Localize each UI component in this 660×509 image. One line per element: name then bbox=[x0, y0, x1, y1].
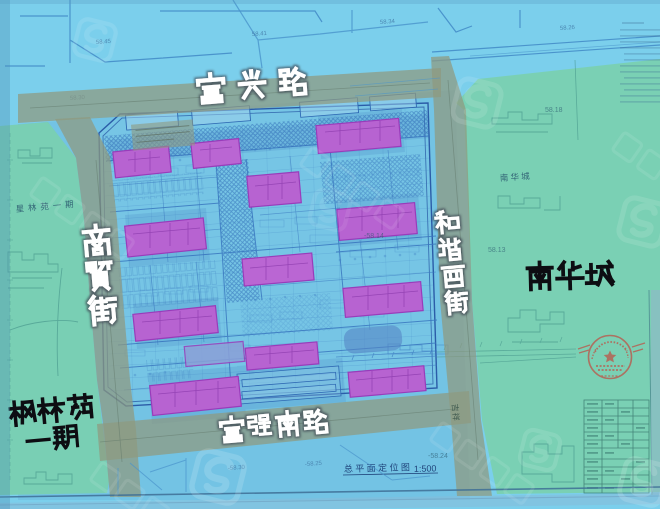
svg-text:1:500: 1:500 bbox=[414, 463, 437, 474]
svg-text:58.18: 58.18 bbox=[545, 107, 563, 114]
svg-text:吉祥: 吉祥 bbox=[450, 403, 461, 421]
svg-text:-58.14: -58.14 bbox=[364, 233, 384, 240]
svg-text:-58.24: -58.24 bbox=[428, 453, 448, 460]
svg-text:58.26: 58.26 bbox=[560, 25, 576, 32]
svg-text:58.13: 58.13 bbox=[488, 247, 506, 254]
svg-text:58.34: 58.34 bbox=[380, 19, 396, 26]
svg-text:南华城: 南华城 bbox=[499, 171, 530, 183]
svg-text:58.41: 58.41 bbox=[252, 31, 268, 38]
svg-text:-58.25: -58.25 bbox=[305, 461, 323, 468]
